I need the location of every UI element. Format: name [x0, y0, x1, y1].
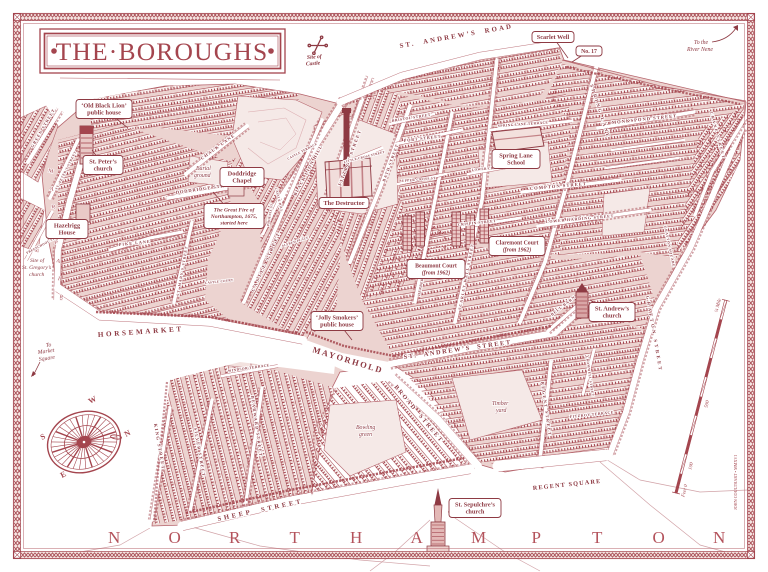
- svg-text:‘Jolly Smokers’: ‘Jolly Smokers’: [316, 315, 358, 322]
- svg-text:Spring Lane: Spring Lane: [499, 153, 533, 160]
- svg-text:O: O: [653, 528, 665, 547]
- svg-text:House: House: [59, 230, 76, 237]
- svg-text:R: R: [229, 528, 241, 547]
- svg-text:(from 1962): (from 1962): [503, 246, 532, 253]
- svg-text:Burial: Burial: [196, 166, 211, 172]
- svg-text:Bowling: Bowling: [356, 425, 375, 431]
- svg-text:Chapel: Chapel: [232, 178, 251, 185]
- svg-text:School: School: [507, 160, 525, 167]
- svg-text:No. 17: No. 17: [581, 49, 597, 55]
- svg-text:JOHN COULTHART • MMXVI: JOHN COULTHART • MMXVI: [733, 455, 738, 510]
- svg-text:public house: public house: [87, 110, 121, 117]
- svg-text:green: green: [359, 432, 372, 438]
- svg-text:ground: ground: [194, 173, 211, 179]
- svg-text:Doddridge: Doddridge: [228, 171, 257, 178]
- svg-text:‘Old Black Lion’: ‘Old Black Lion’: [81, 103, 127, 110]
- svg-text:St. Peter’s: St. Peter’s: [89, 159, 117, 166]
- svg-text:St. Gregory’s: St. Gregory’s: [22, 265, 51, 271]
- svg-text:St. Sepulchre’s: St. Sepulchre’s: [455, 502, 495, 509]
- svg-text:Claremont Court: Claremont Court: [496, 241, 539, 247]
- svg-text:P: P: [532, 528, 541, 547]
- svg-text:St. Andrew’s: St. Andrew’s: [595, 306, 630, 313]
- svg-text:N: N: [108, 528, 120, 547]
- svg-text:church: church: [29, 272, 45, 278]
- svg-text:THE·BOROUGHS: THE·BOROUGHS: [56, 37, 269, 66]
- svg-text:Beaumont Court: Beaumont Court: [415, 264, 457, 270]
- svg-text:Scarlet Well: Scarlet Well: [537, 34, 570, 41]
- svg-text:The Destructor: The Destructor: [323, 200, 364, 207]
- svg-text:yard: yard: [495, 408, 507, 414]
- svg-text:Timber: Timber: [492, 401, 509, 407]
- svg-text:A: A: [411, 528, 424, 547]
- svg-text:Site of: Site of: [30, 257, 46, 264]
- svg-text:church: church: [466, 509, 485, 516]
- svg-text:The Great Fire of: The Great Fire of: [214, 208, 256, 214]
- svg-text:N: N: [713, 528, 725, 547]
- svg-text:church: church: [94, 166, 113, 173]
- svg-text:started here: started here: [219, 220, 248, 226]
- svg-text:H: H: [350, 528, 362, 547]
- svg-text:Northampton, 1675,: Northampton, 1675,: [210, 214, 257, 220]
- svg-text:(from 1962): (from 1962): [422, 269, 451, 276]
- svg-text:River Nene: River Nene: [686, 47, 713, 53]
- svg-text:O: O: [169, 528, 181, 547]
- svg-text:To the: To the: [694, 40, 709, 46]
- svg-text:T: T: [592, 528, 603, 547]
- svg-text:M: M: [471, 528, 486, 547]
- svg-text:Castle: Castle: [306, 60, 321, 67]
- svg-text:T: T: [290, 528, 301, 547]
- svg-text:public house: public house: [320, 322, 354, 329]
- svg-text:Hazelrigg: Hazelrigg: [54, 223, 81, 230]
- svg-text:church: church: [603, 313, 622, 320]
